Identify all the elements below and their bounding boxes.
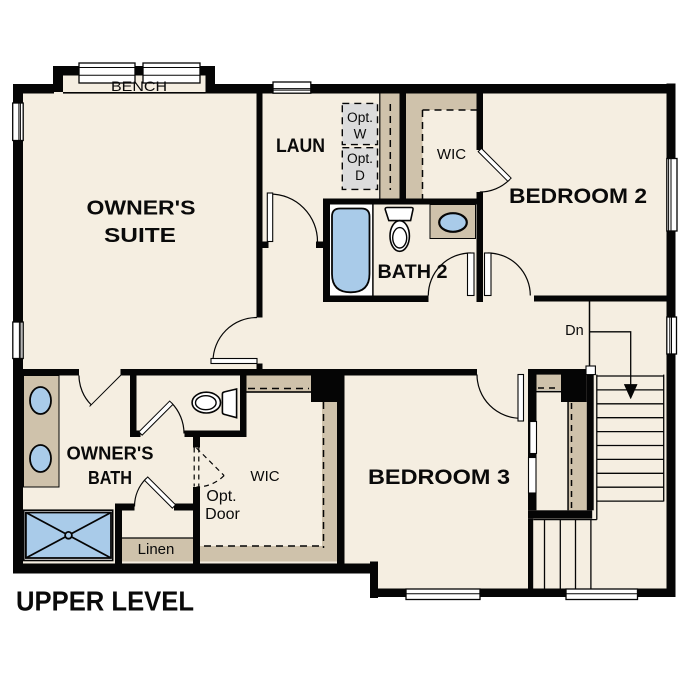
svg-text:Opt.: Opt.	[206, 488, 236, 505]
svg-text:WIC: WIC	[250, 468, 279, 485]
svg-text:W: W	[354, 127, 367, 142]
svg-text:BEDROOM 2: BEDROOM 2	[509, 185, 647, 208]
svg-text:D: D	[355, 168, 365, 183]
svg-text:Door: Door	[205, 506, 240, 523]
svg-text:WIC: WIC	[437, 146, 466, 163]
svg-text:Opt.: Opt.	[347, 151, 373, 166]
svg-text:OWNER'S: OWNER'S	[67, 444, 154, 464]
svg-text:OWNER'S: OWNER'S	[87, 198, 196, 220]
svg-text:LAUN: LAUN	[276, 136, 325, 157]
svg-text:SUITE: SUITE	[104, 225, 176, 247]
svg-text:Linen: Linen	[138, 541, 175, 558]
svg-text:BENCH: BENCH	[111, 78, 167, 94]
svg-text:BATH: BATH	[88, 468, 132, 488]
svg-text:Dn: Dn	[565, 323, 584, 339]
svg-text:BATH 2: BATH 2	[378, 262, 448, 283]
svg-text:Opt.: Opt.	[347, 110, 373, 125]
svg-text:UPPER LEVEL: UPPER LEVEL	[16, 586, 194, 617]
svg-text:BEDROOM 3: BEDROOM 3	[368, 466, 510, 489]
